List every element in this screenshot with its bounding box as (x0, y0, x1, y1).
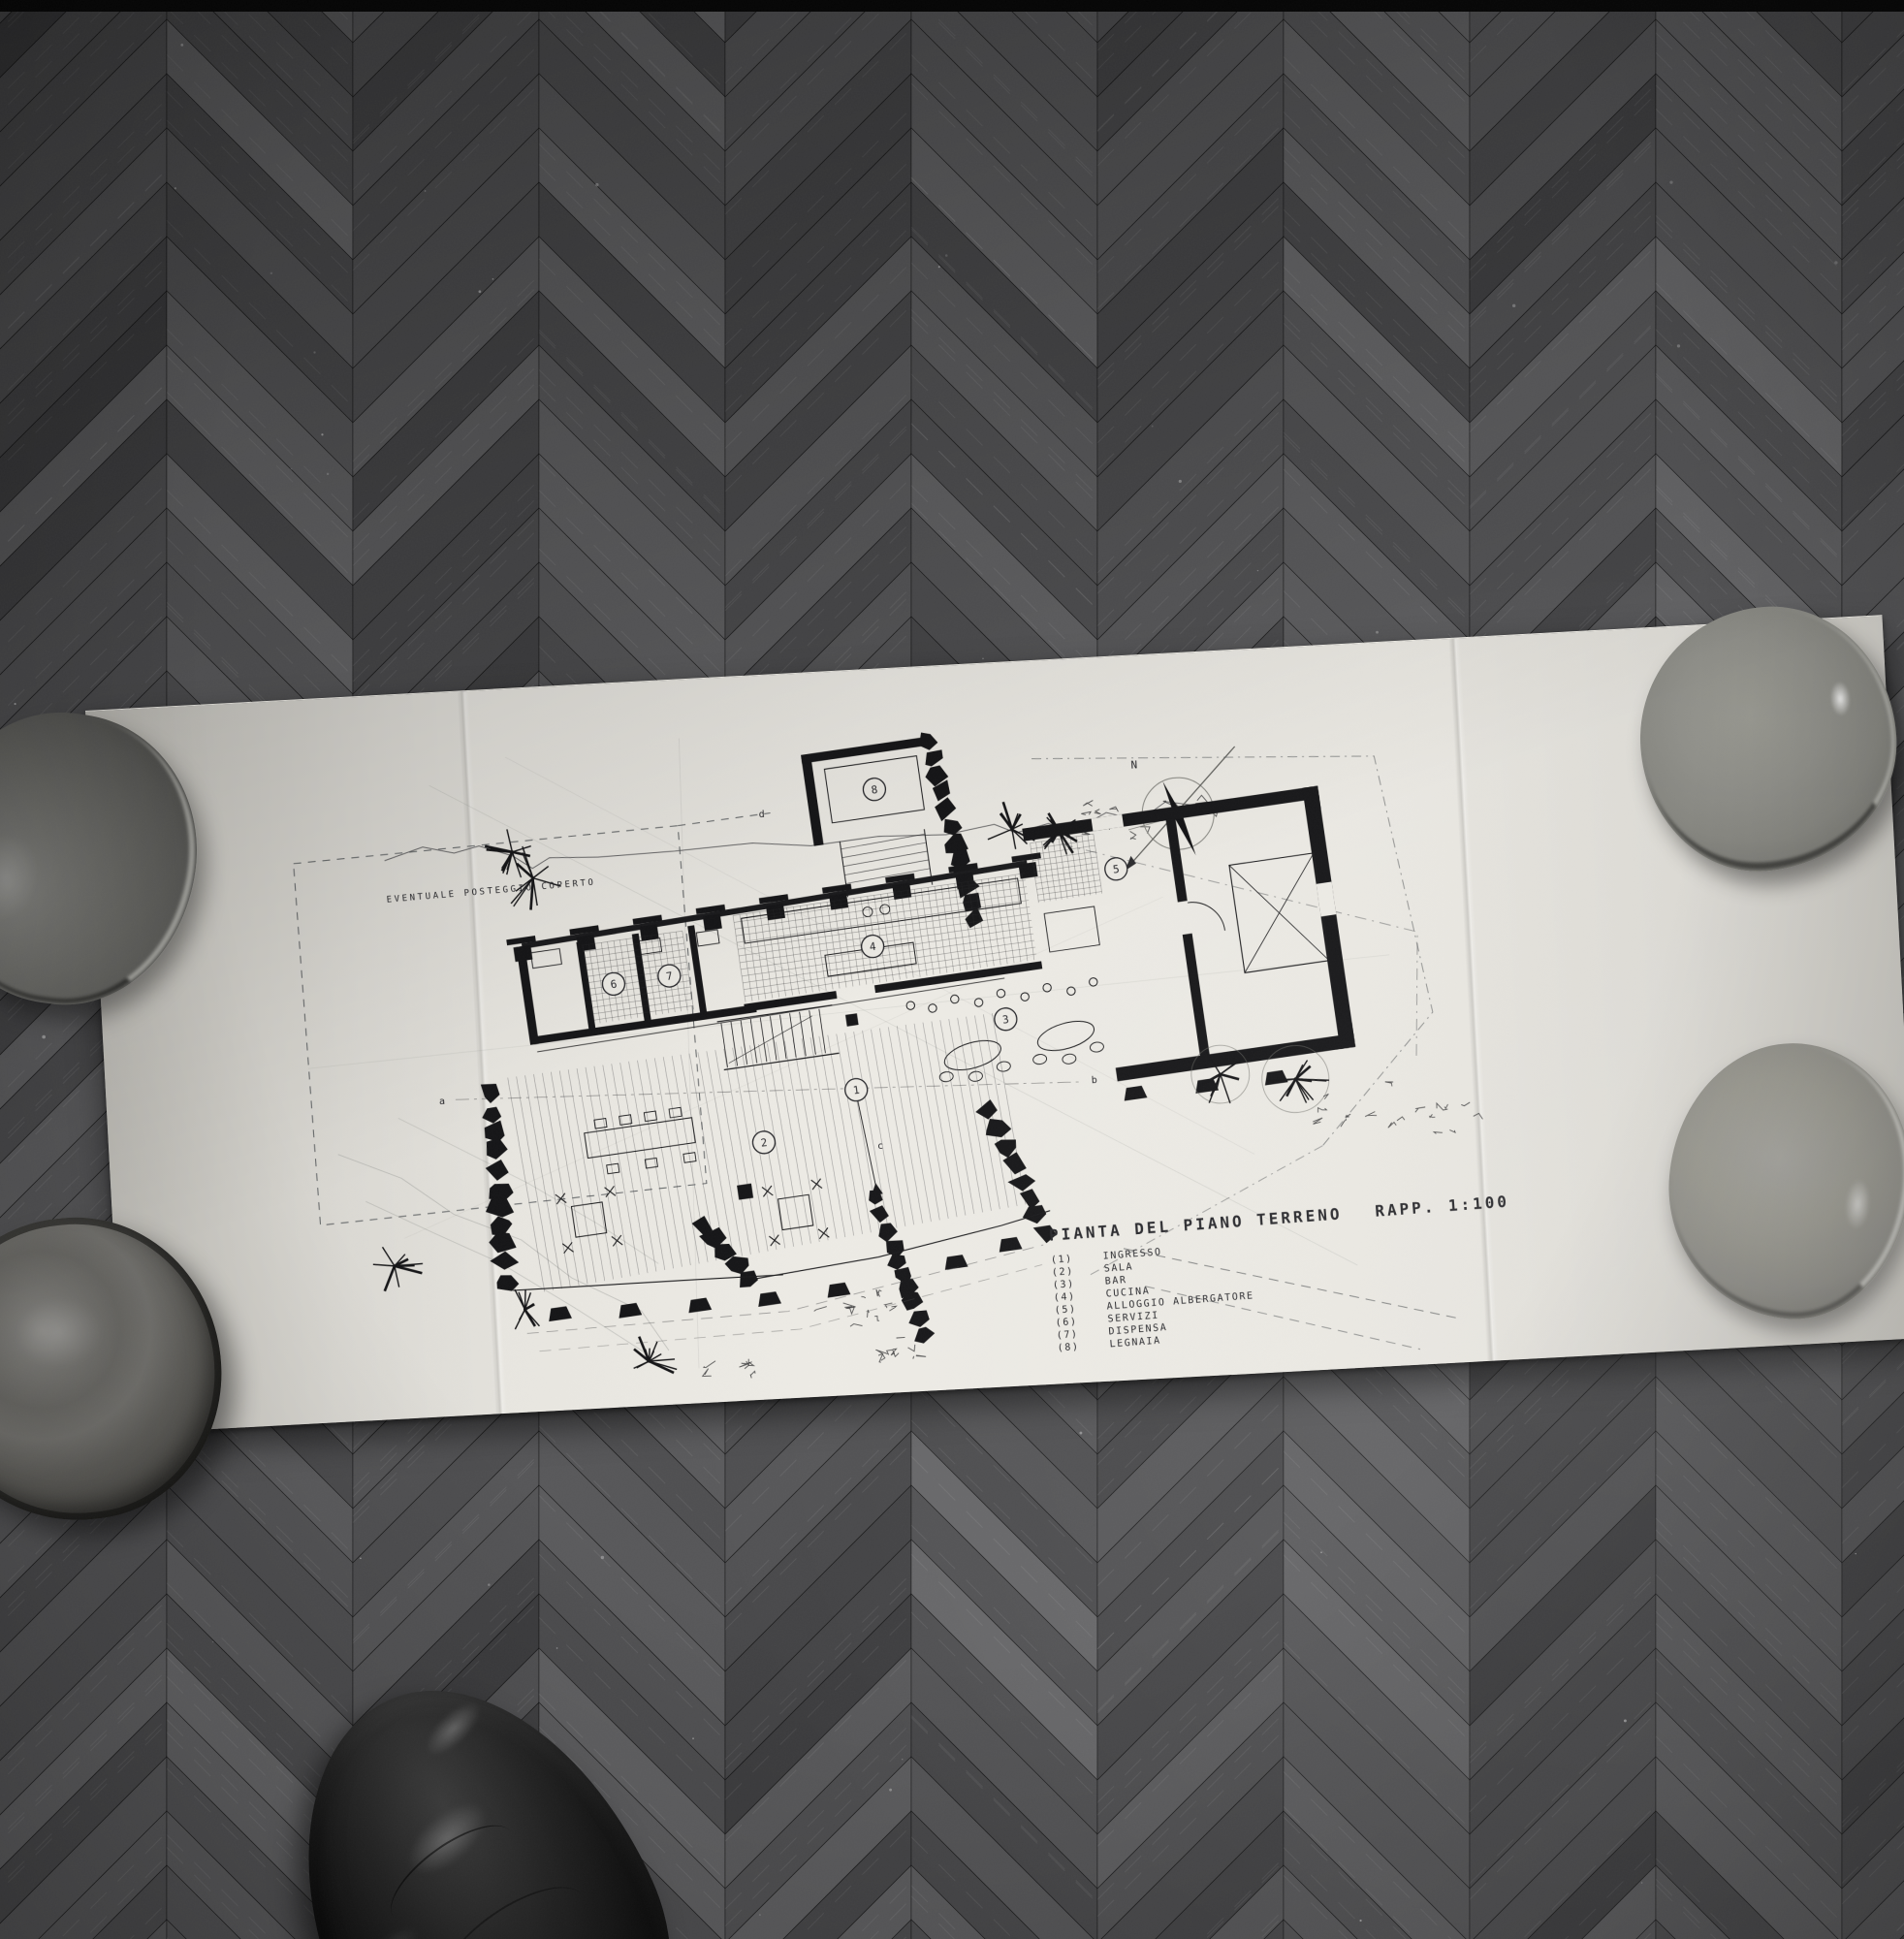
bowl-specular-highlight (1825, 675, 1856, 723)
bowl-specular-highlight (0, 810, 60, 943)
plan-title: PIANTA DEL PIANO TERRENORAPP. 1:100 (1048, 1192, 1509, 1245)
section-letter: d (758, 810, 765, 820)
bowl-specular-highlight (0, 1280, 121, 1384)
leather-shoe-toe (229, 1669, 655, 1939)
section-letter: a (439, 1097, 446, 1107)
plan-scale: RAPP. 1:100 (1375, 1192, 1510, 1221)
film-edge (0, 0, 1904, 12)
section-letter: b (1091, 1075, 1097, 1086)
title-block: PIANTA DEL PIANO TERRENORAPP. 1:100 (1)I… (1048, 1192, 1518, 1354)
architectural-drawing-sheet: 1 2 3 4 5 6 7 8 PIANTA DEL PIANO TERRENO… (85, 615, 1904, 1434)
photo-frame: 1 2 3 4 5 6 7 8 PIANTA DEL PIANO TERRENO… (0, 0, 1904, 1939)
section-letter: c (877, 1141, 884, 1152)
parking-annotation: EVENTUALE POSTEGGIO COPERTO (386, 877, 596, 905)
floor-plan-drawing: 1 2 3 4 5 6 7 8 PIANTA DEL PIANO TERRENO… (85, 616, 1904, 1434)
building-plan-ink (424, 660, 1503, 1403)
compass-north-label: N (1130, 758, 1137, 771)
shoe-toe-cap (237, 1632, 726, 1939)
bowl-specular-highlight (1838, 1169, 1877, 1240)
shoe-sheen-highlight (405, 1682, 500, 1776)
